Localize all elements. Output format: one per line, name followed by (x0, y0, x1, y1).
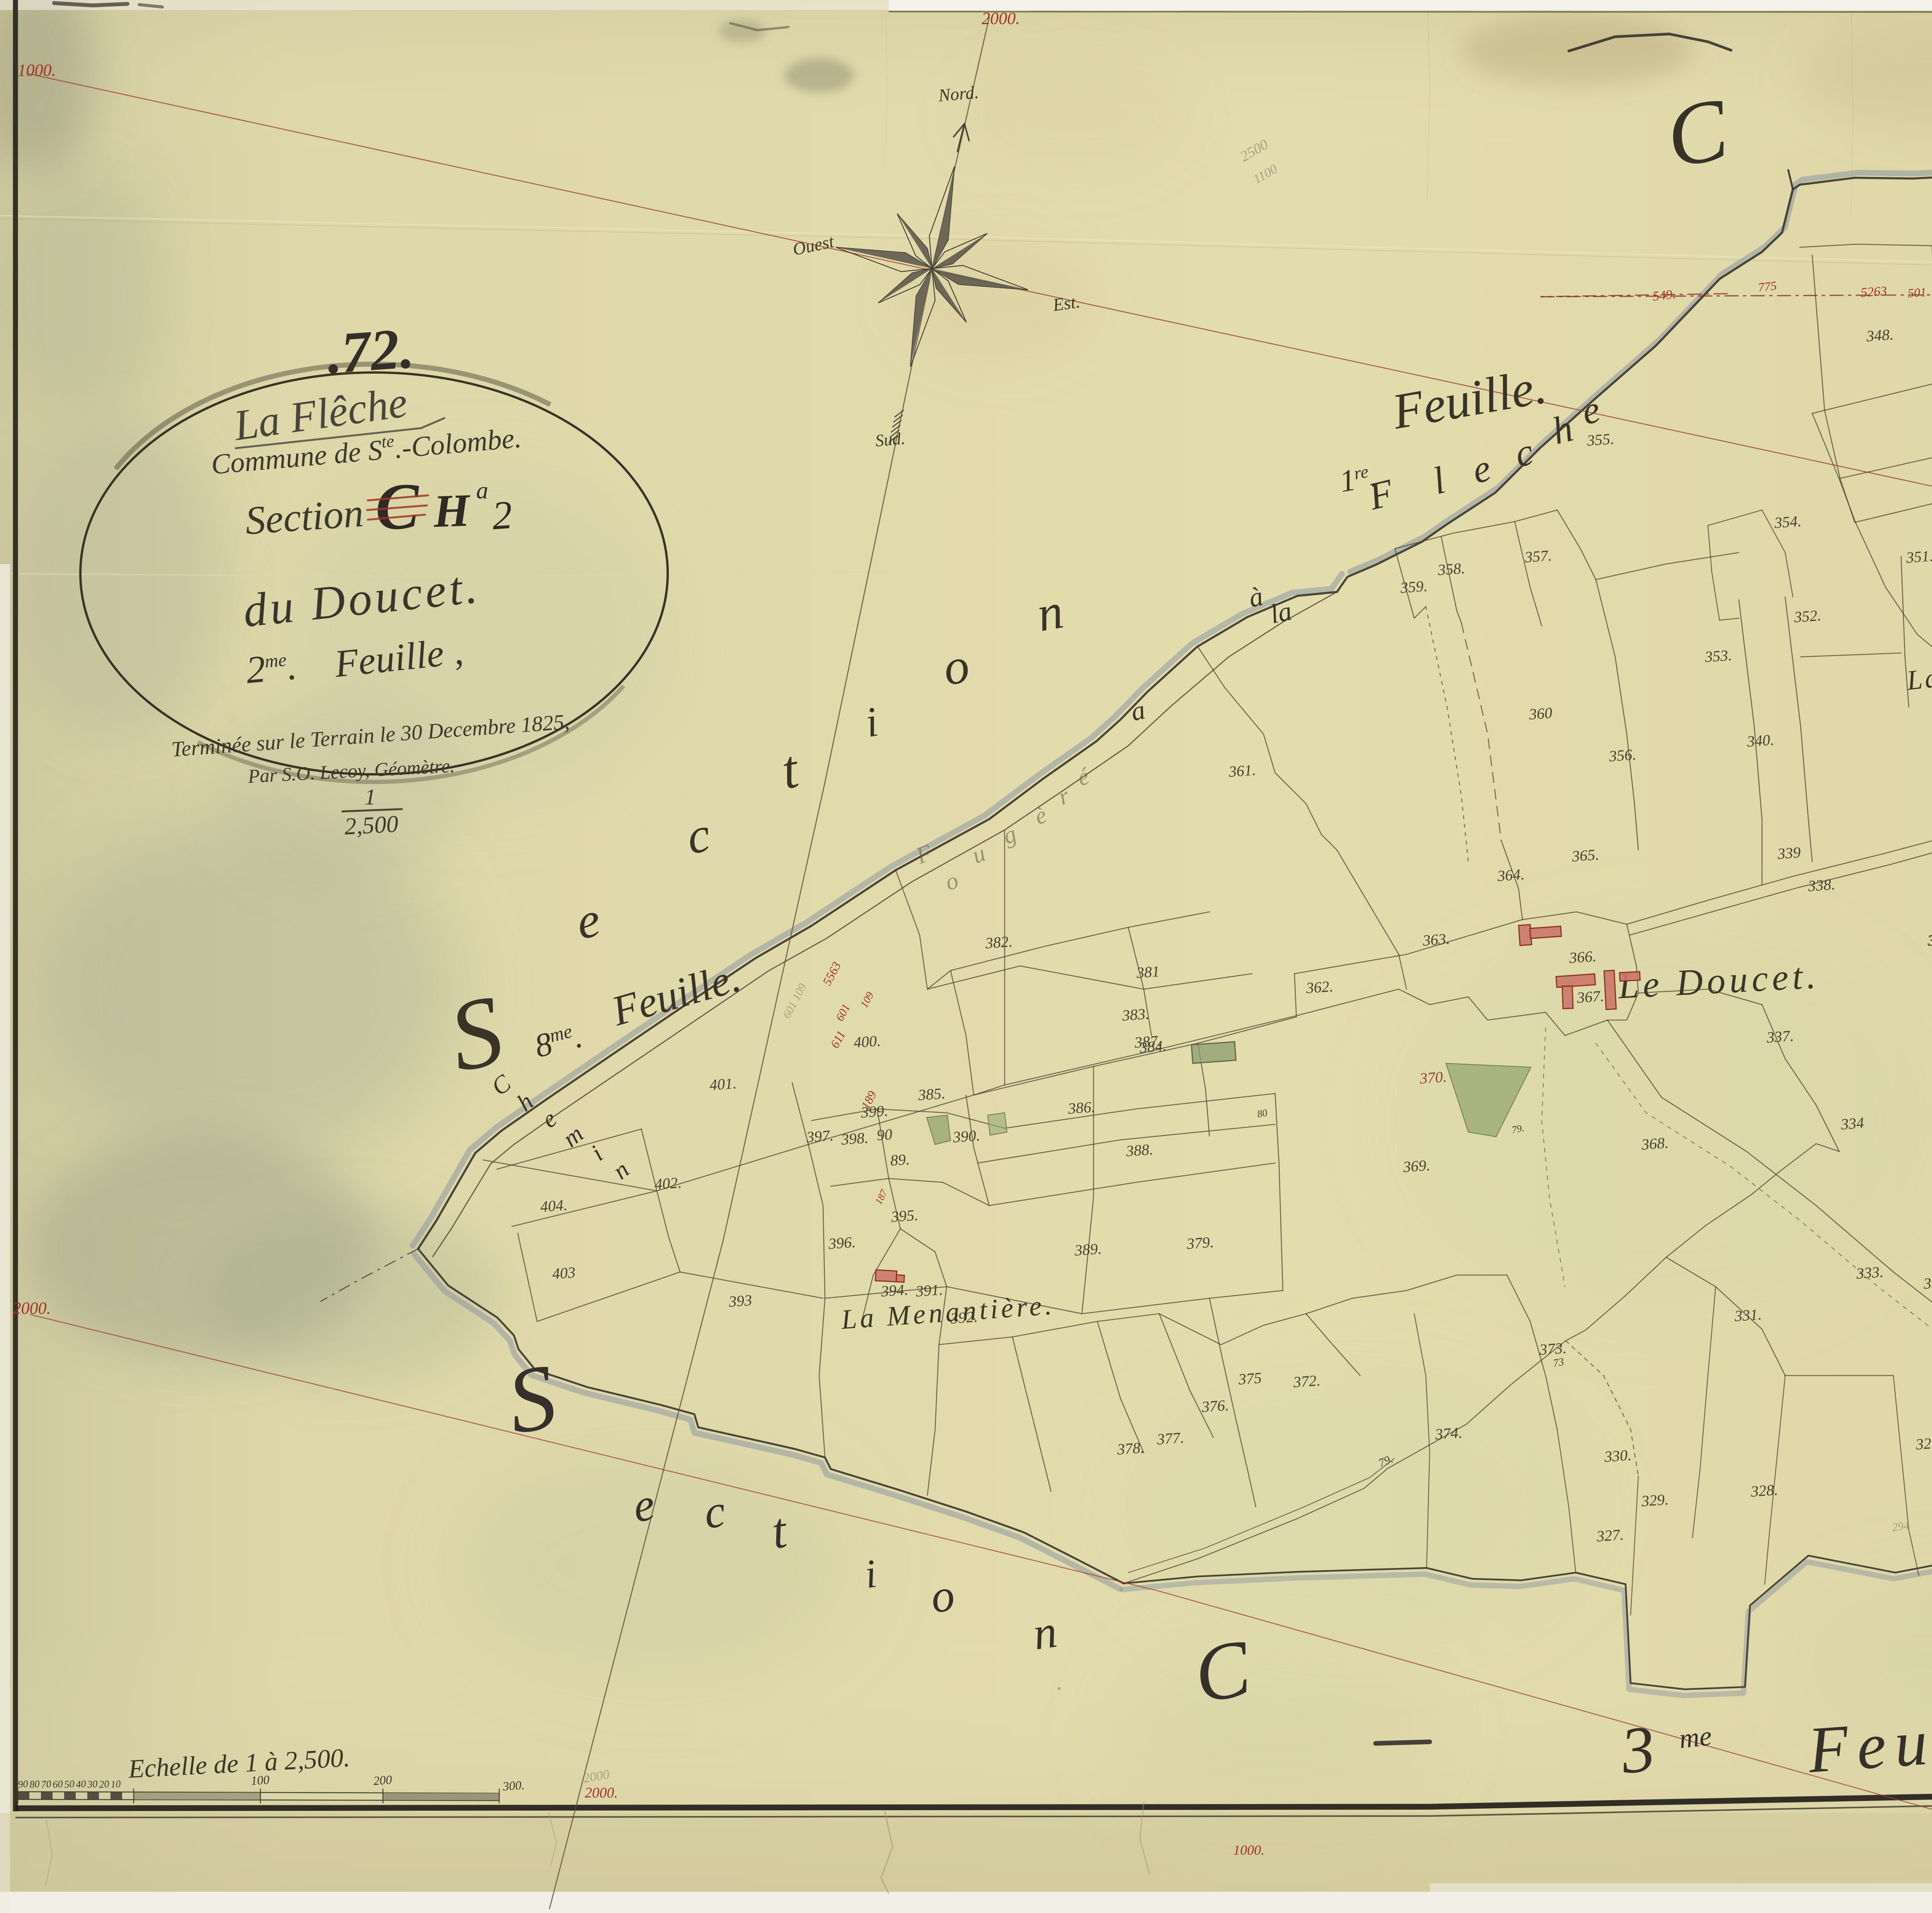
svg-text:348.: 348. (1866, 326, 1894, 345)
svg-text:379.: 379. (1186, 1233, 1214, 1253)
svg-text:329.: 329. (1641, 1491, 1669, 1510)
svg-text:400.: 400. (853, 1032, 881, 1051)
svg-text:372.: 372. (1293, 1372, 1321, 1391)
svg-text:2: 2 (491, 492, 514, 538)
svg-text:10: 10 (110, 1778, 121, 1790)
svg-text:370.: 370. (1419, 1068, 1447, 1087)
svg-text:2,500: 2,500 (344, 811, 399, 840)
svg-text:359.: 359. (1400, 577, 1428, 597)
svg-text:339: 339 (1777, 843, 1801, 862)
svg-text:404.: 404. (540, 1196, 568, 1216)
svg-text:331.: 331. (1734, 1306, 1762, 1325)
svg-text:389.: 389. (1074, 1240, 1102, 1259)
svg-text:89.: 89. (890, 1150, 910, 1169)
svg-text:375: 375 (1238, 1369, 1262, 1388)
svg-text:402.: 402. (654, 1174, 682, 1193)
svg-text:325.: 325. (1923, 1273, 1932, 1292)
svg-text:80: 80 (29, 1778, 40, 1790)
svg-text:352.: 352. (1793, 607, 1822, 626)
svg-text:20: 20 (99, 1778, 109, 1790)
svg-text:368.: 368. (1641, 1134, 1669, 1153)
svg-text:382.: 382. (985, 933, 1013, 952)
svg-text:387.: 387. (1134, 1032, 1162, 1051)
svg-text:73: 73 (1552, 1356, 1565, 1369)
svg-text:396.: 396. (828, 1233, 856, 1253)
svg-text:395.: 395. (890, 1206, 919, 1226)
svg-text:366.: 366. (1568, 947, 1597, 967)
svg-text:338.: 338. (1807, 876, 1836, 895)
svg-text:334: 334 (1840, 1114, 1865, 1133)
svg-text:294: 294 (1891, 1519, 1910, 1534)
svg-text:358.: 358. (1437, 559, 1466, 579)
svg-text:5263: 5263 (1860, 284, 1887, 300)
svg-text:337.: 337. (1766, 1027, 1794, 1046)
svg-text:90: 90 (876, 1126, 893, 1144)
svg-text:365.: 365. (1571, 846, 1600, 865)
svg-text:403: 403 (552, 1263, 576, 1282)
svg-text:2000.: 2000. (585, 1785, 618, 1801)
svg-text:326.: 326. (1915, 1434, 1932, 1453)
svg-text:501: 501 (1907, 285, 1927, 300)
svg-text:330.: 330. (1604, 1446, 1632, 1466)
svg-text:340.: 340. (1746, 731, 1775, 750)
svg-text:549.: 549. (1652, 287, 1676, 304)
svg-text:200: 200 (373, 1772, 392, 1787)
svg-text:70: 70 (41, 1778, 51, 1790)
svg-text:H: H (432, 484, 472, 537)
svg-text:385.: 385. (917, 1085, 946, 1104)
svg-text:397.: 397. (806, 1127, 834, 1146)
svg-text:394.: 394. (880, 1281, 909, 1300)
svg-text:386.: 386. (1067, 1098, 1096, 1117)
svg-text:79.: 79. (1511, 1122, 1525, 1136)
svg-text:363.: 363. (1422, 930, 1451, 949)
svg-text:Nord.: Nord. (937, 82, 979, 105)
svg-text:401.: 401. (709, 1075, 737, 1094)
svg-text:Sud.: Sud. (874, 429, 906, 451)
svg-text:398.: 398. (840, 1129, 869, 1148)
svg-text:327.: 327. (1596, 1526, 1624, 1545)
svg-text:354.: 354. (1774, 512, 1802, 532)
svg-text:.72.: .72. (325, 316, 416, 386)
svg-text:388.: 388. (1125, 1141, 1154, 1160)
svg-text:360: 360 (1528, 704, 1553, 723)
svg-text:393: 393 (728, 1291, 753, 1310)
svg-text:361.: 361. (1228, 761, 1257, 781)
svg-text:60: 60 (52, 1778, 63, 1790)
svg-text:30: 30 (87, 1778, 98, 1790)
svg-text:377.: 377. (1156, 1429, 1185, 1448)
svg-text:1000.: 1000. (18, 61, 56, 80)
svg-text:333.: 333. (1855, 1263, 1884, 1282)
svg-text:369.: 369. (1402, 1156, 1431, 1176)
svg-text:381: 381 (1136, 962, 1160, 981)
svg-text:1000.: 1000. (1233, 1842, 1265, 1858)
svg-text:775: 775 (1757, 279, 1777, 294)
svg-text:364.: 364. (1497, 866, 1525, 885)
svg-text:351.: 351. (1905, 547, 1932, 566)
svg-text:362.: 362. (1305, 978, 1334, 997)
svg-text:90: 90 (17, 1778, 28, 1790)
svg-text:50: 50 (64, 1778, 75, 1790)
svg-text:356.: 356. (1608, 746, 1637, 765)
svg-text:374.: 374. (1434, 1424, 1463, 1443)
svg-text:376.: 376. (1201, 1396, 1230, 1416)
svg-text:Est.: Est. (1051, 292, 1082, 315)
svg-text:353.: 353. (1704, 646, 1733, 666)
svg-text:2000.: 2000. (982, 9, 1020, 28)
svg-text:a: a (476, 478, 488, 504)
svg-text:Section: Section (244, 491, 365, 543)
svg-text:me: me (1678, 1720, 1713, 1754)
svg-text:357.: 357. (1524, 547, 1553, 566)
svg-text:1: 1 (365, 784, 376, 809)
svg-text:390.: 390. (952, 1127, 981, 1146)
svg-text:300.: 300. (502, 1778, 525, 1793)
svg-text:378.: 378. (1116, 1439, 1145, 1458)
svg-text:328.: 328. (1750, 1481, 1779, 1500)
svg-text:355.: 355. (1586, 430, 1615, 449)
svg-text:80: 80 (1256, 1107, 1268, 1120)
svg-text:2000.: 2000. (13, 1299, 51, 1318)
svg-text:·: · (1056, 1676, 1062, 1701)
svg-text:383.: 383. (1121, 1005, 1150, 1024)
svg-text:100: 100 (250, 1772, 270, 1787)
svg-text:40: 40 (75, 1778, 86, 1790)
svg-text:367.: 367. (1576, 987, 1605, 1007)
